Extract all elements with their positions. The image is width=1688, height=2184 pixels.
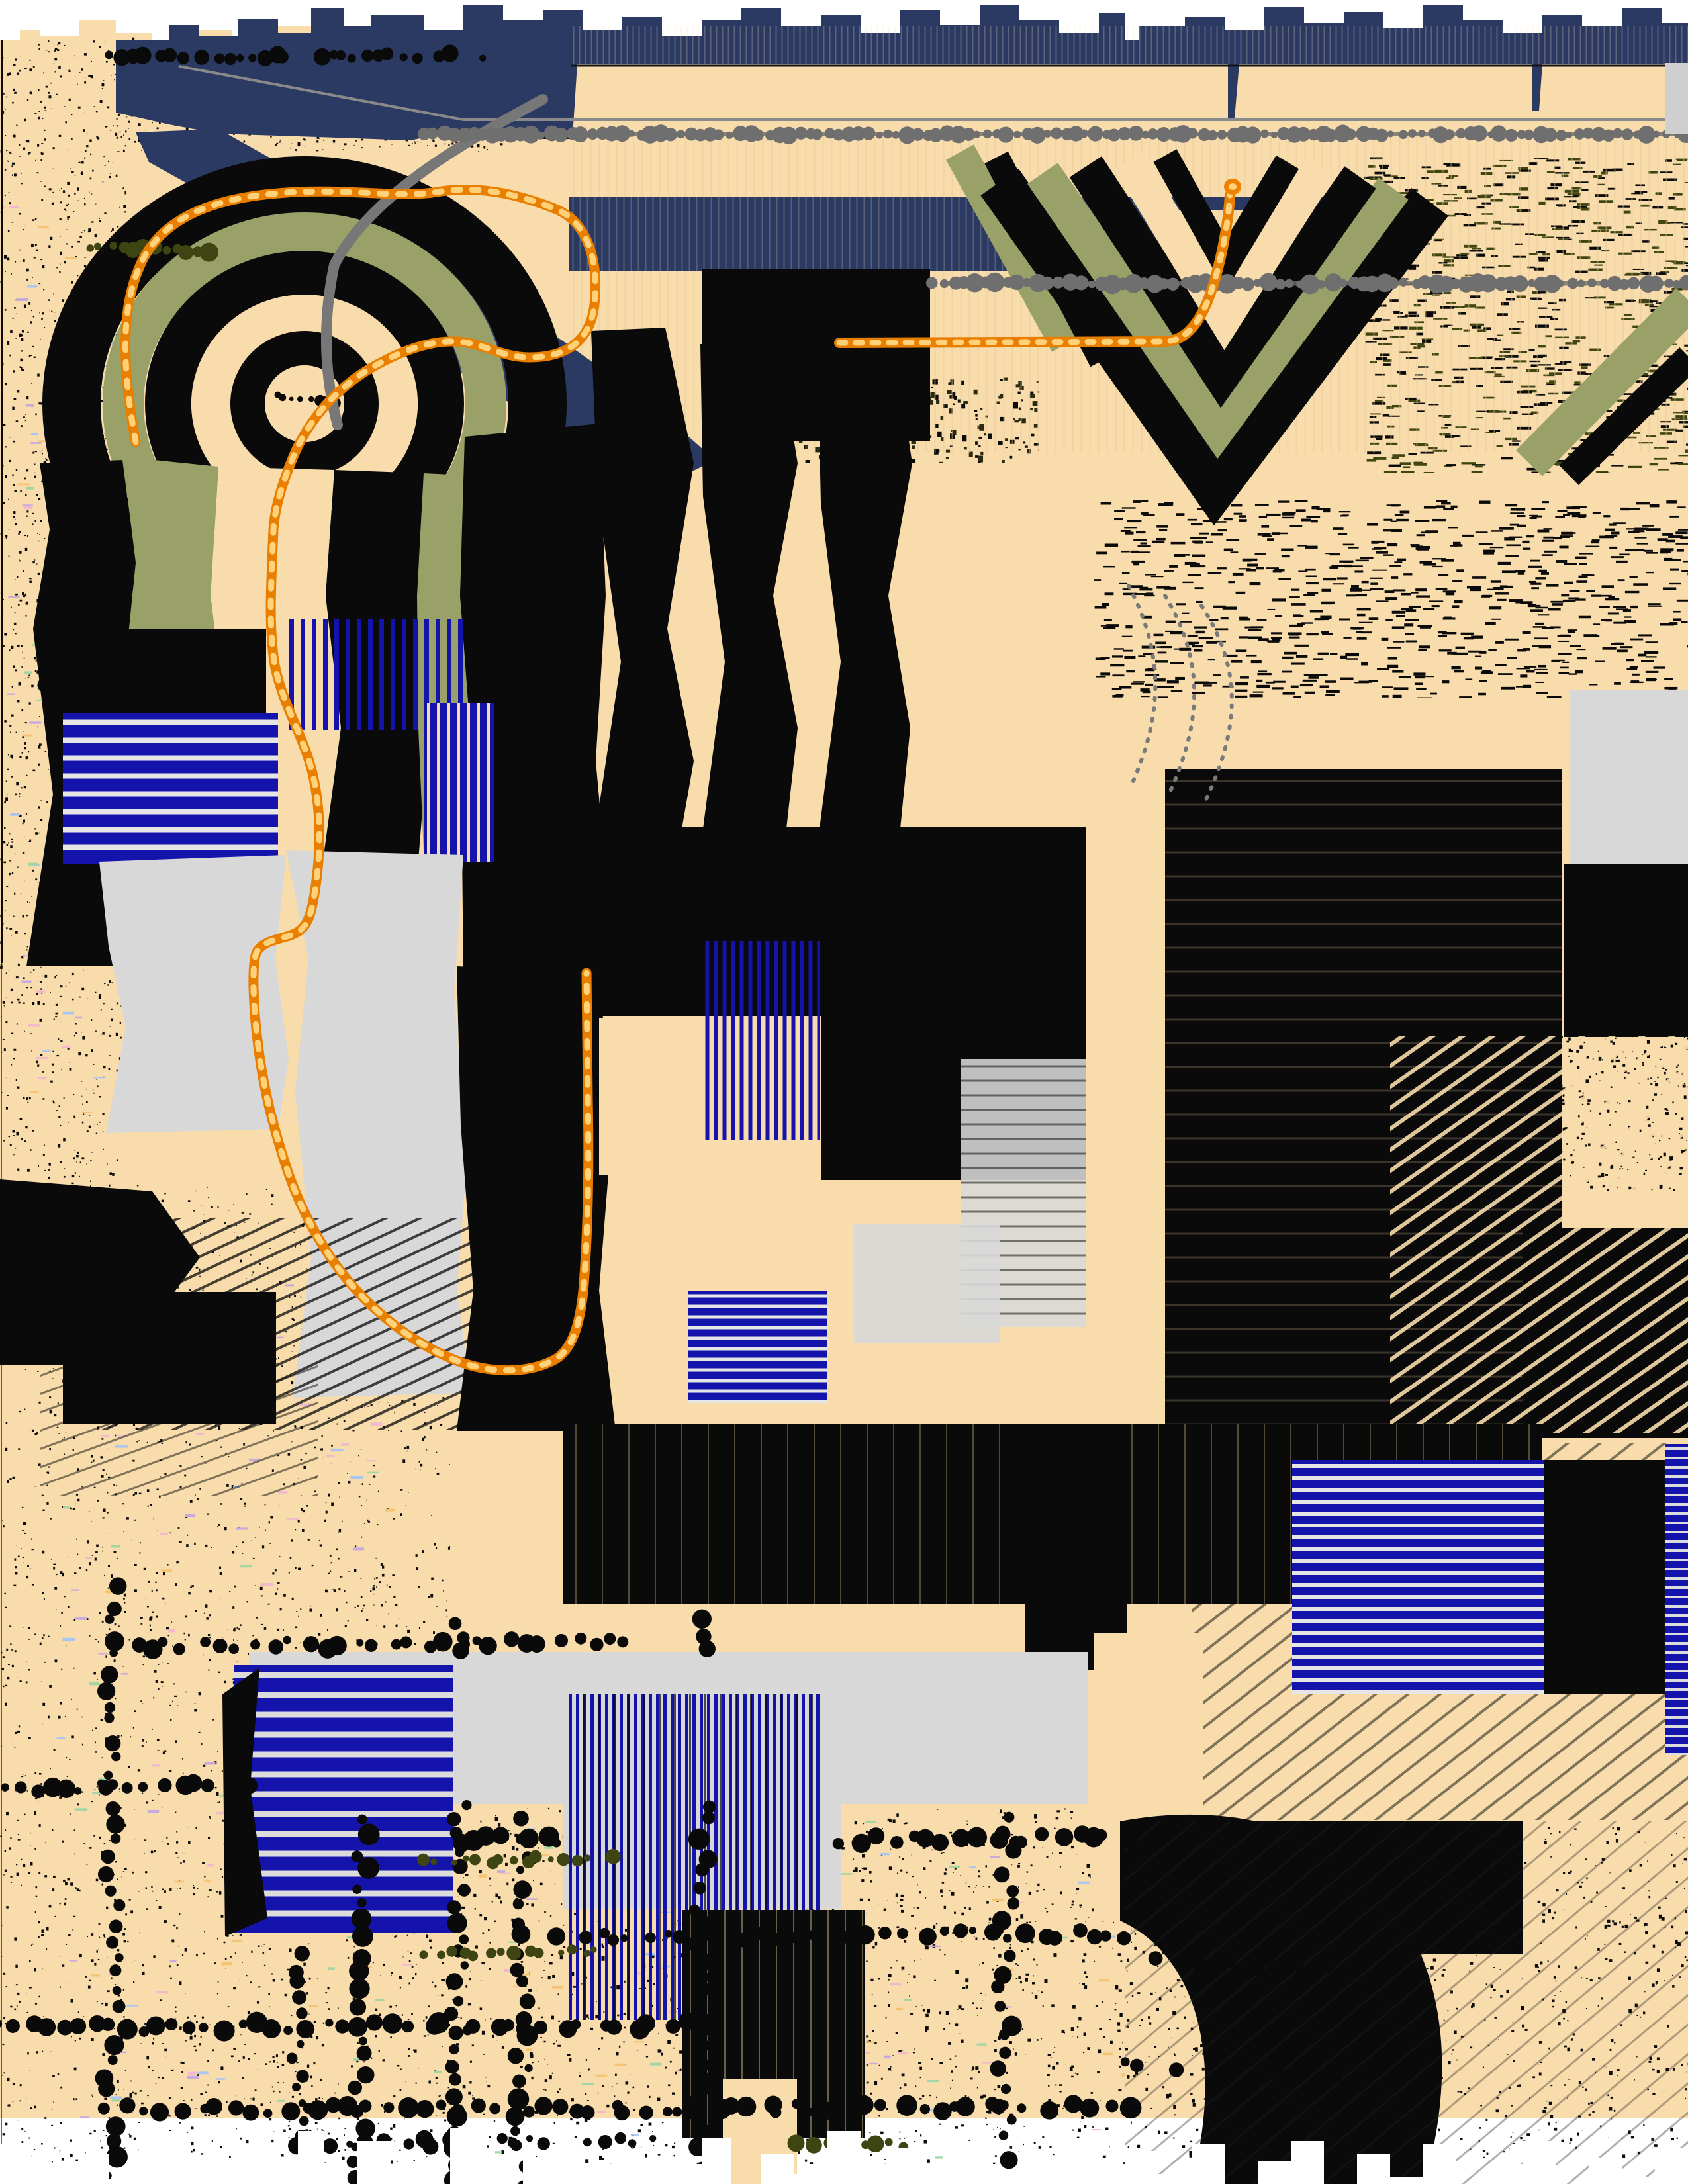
gray-top-right xyxy=(1665,63,1688,134)
black-box-lowleft xyxy=(63,1292,276,1424)
gray-blob-c2 xyxy=(854,1224,1000,1343)
blue-stripes-midleft xyxy=(63,713,278,864)
blue-patch-c xyxy=(688,1291,827,1403)
blue-stripes-right xyxy=(1292,1460,1544,1694)
black-box-midleft xyxy=(60,629,266,721)
blue-edge-right xyxy=(1665,1444,1688,1755)
slab-black-right-2 xyxy=(1564,864,1688,1037)
blue-streaks-center xyxy=(424,703,494,862)
fingers-mass xyxy=(594,827,1086,1016)
orange-end-dot-core xyxy=(1229,183,1237,190)
blue-box-bottomleft xyxy=(234,1665,453,1933)
gray-blob-left xyxy=(99,855,289,1133)
claw-black-3 xyxy=(460,424,608,973)
gray-blob-right-edge xyxy=(1570,690,1688,866)
artwork-canvas xyxy=(0,0,1688,2184)
black-right-of-blue xyxy=(1544,1460,1665,1694)
slab-black-right xyxy=(1165,769,1562,1434)
glitch-collage xyxy=(0,0,1688,2184)
